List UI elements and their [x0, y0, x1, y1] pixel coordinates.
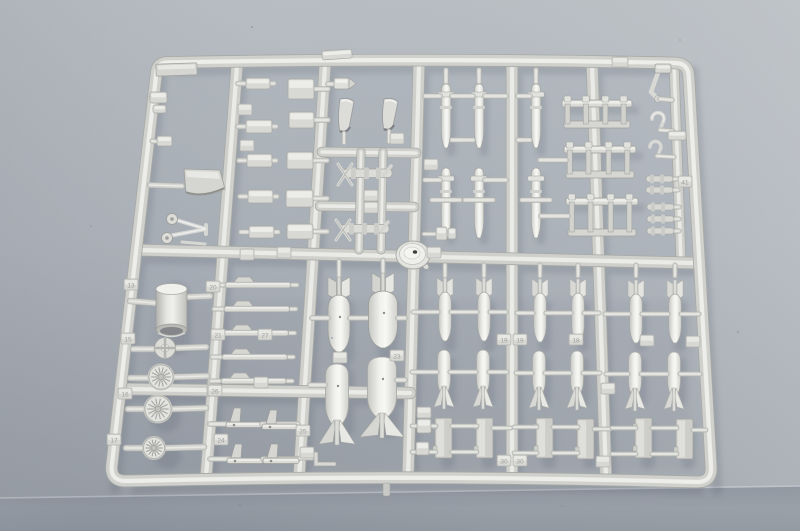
svg-text:25: 25: [299, 429, 307, 436]
svg-text:26: 26: [211, 389, 219, 396]
svg-text:13: 13: [127, 283, 135, 290]
svg-text:23: 23: [393, 354, 401, 361]
svg-text:21: 21: [214, 333, 222, 340]
svg-text:17: 17: [110, 438, 118, 445]
svg-text:27: 27: [261, 333, 269, 340]
svg-text:18: 18: [572, 338, 580, 345]
svg-text:19: 19: [500, 338, 508, 345]
svg-text:30: 30: [500, 459, 508, 466]
svg-text:24: 24: [217, 438, 225, 445]
svg-text:19: 19: [516, 338, 524, 345]
svg-text:16: 16: [121, 392, 129, 399]
svg-text:30: 30: [516, 459, 524, 466]
svg-text:15: 15: [124, 337, 132, 344]
svg-text:20: 20: [209, 285, 217, 292]
svg-text:41: 41: [681, 180, 689, 187]
